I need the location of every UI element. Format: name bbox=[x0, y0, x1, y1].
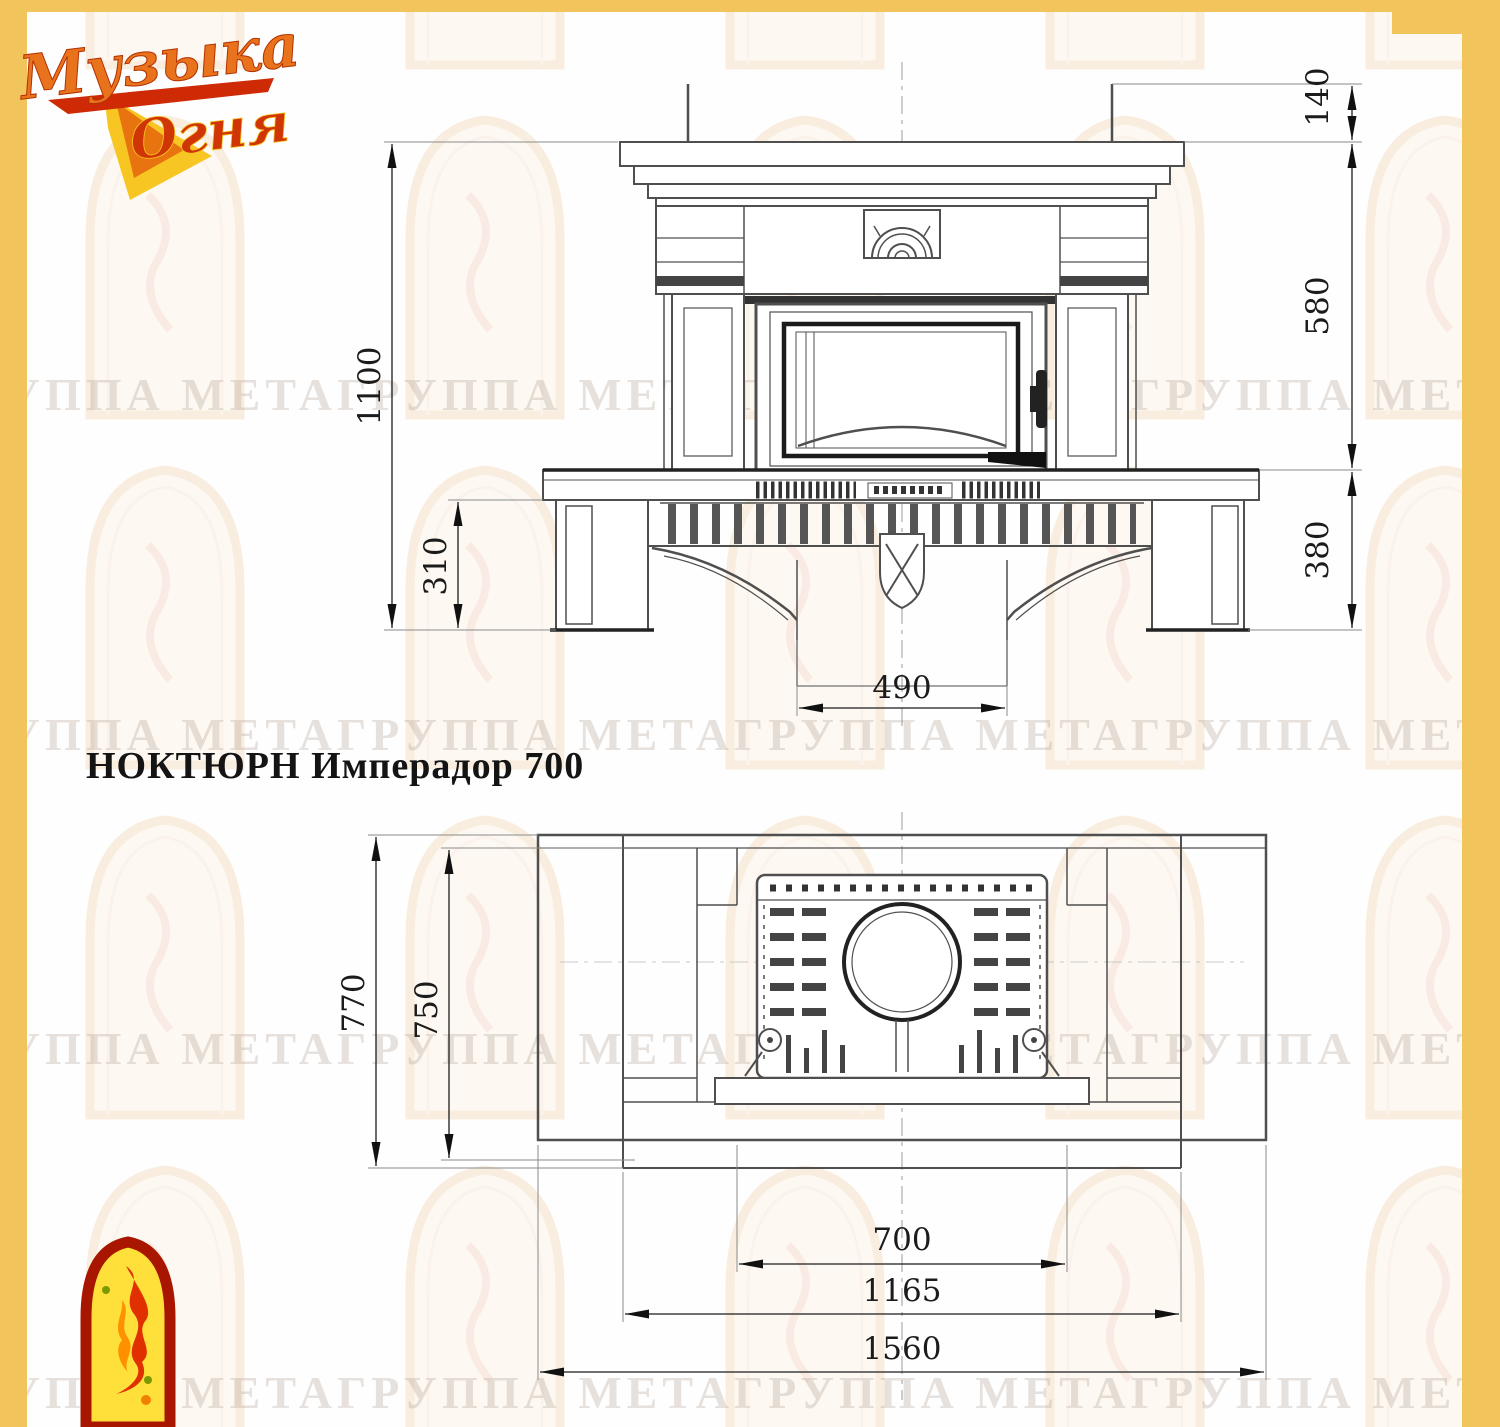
plan-view-drawing bbox=[538, 812, 1266, 1400]
technical-drawing bbox=[0, 0, 1500, 1427]
front-view-drawing bbox=[543, 62, 1259, 730]
dim-front-crown-height: 140 bbox=[1300, 67, 1336, 126]
fan-ornament bbox=[864, 210, 940, 258]
right-column bbox=[1056, 294, 1136, 470]
dim-front-base-height: 310 bbox=[418, 536, 454, 595]
brand-logo: Музыка Огня bbox=[12, 8, 332, 208]
chimney-stubs bbox=[688, 84, 1112, 142]
dim-plan-total-width: 1560 bbox=[863, 1331, 942, 1367]
shield-ornament bbox=[880, 534, 924, 608]
dim-front-total-height: 1100 bbox=[352, 347, 388, 426]
hearth-bench bbox=[543, 470, 1259, 500]
dim-plan-inner-width: 1165 bbox=[863, 1273, 942, 1309]
border-left bbox=[0, 0, 27, 1427]
door-handle bbox=[1036, 370, 1047, 428]
dim-front-middle-height: 580 bbox=[1300, 276, 1336, 335]
right-cabinet bbox=[1146, 500, 1250, 630]
model-title: НОКТЮРН Имперадор 700 bbox=[86, 744, 584, 788]
plan-firebox-insert bbox=[715, 875, 1089, 1104]
frieze bbox=[656, 206, 1148, 294]
firebox-door bbox=[756, 304, 1047, 474]
left-column bbox=[664, 294, 744, 470]
dim-plan-depth-outer: 770 bbox=[336, 973, 372, 1032]
border-right bbox=[1462, 0, 1500, 1427]
mantel-crown bbox=[620, 142, 1184, 206]
flame-emblem bbox=[76, 1230, 180, 1427]
page: ГРУППА МЕТАГРУППА МЕТАГРУППА МЕТАГРУППА … bbox=[0, 0, 1500, 1427]
left-cabinet bbox=[550, 500, 654, 630]
dim-plan-depth-inner: 750 bbox=[409, 980, 445, 1039]
dim-front-plinth-width: 490 bbox=[872, 670, 931, 706]
insert-front-plate bbox=[715, 1078, 1089, 1104]
dim-plan-firebox-width: 700 bbox=[872, 1222, 931, 1258]
emblem-arch bbox=[86, 1242, 170, 1427]
dim-front-bench-height: 380 bbox=[1300, 520, 1336, 579]
